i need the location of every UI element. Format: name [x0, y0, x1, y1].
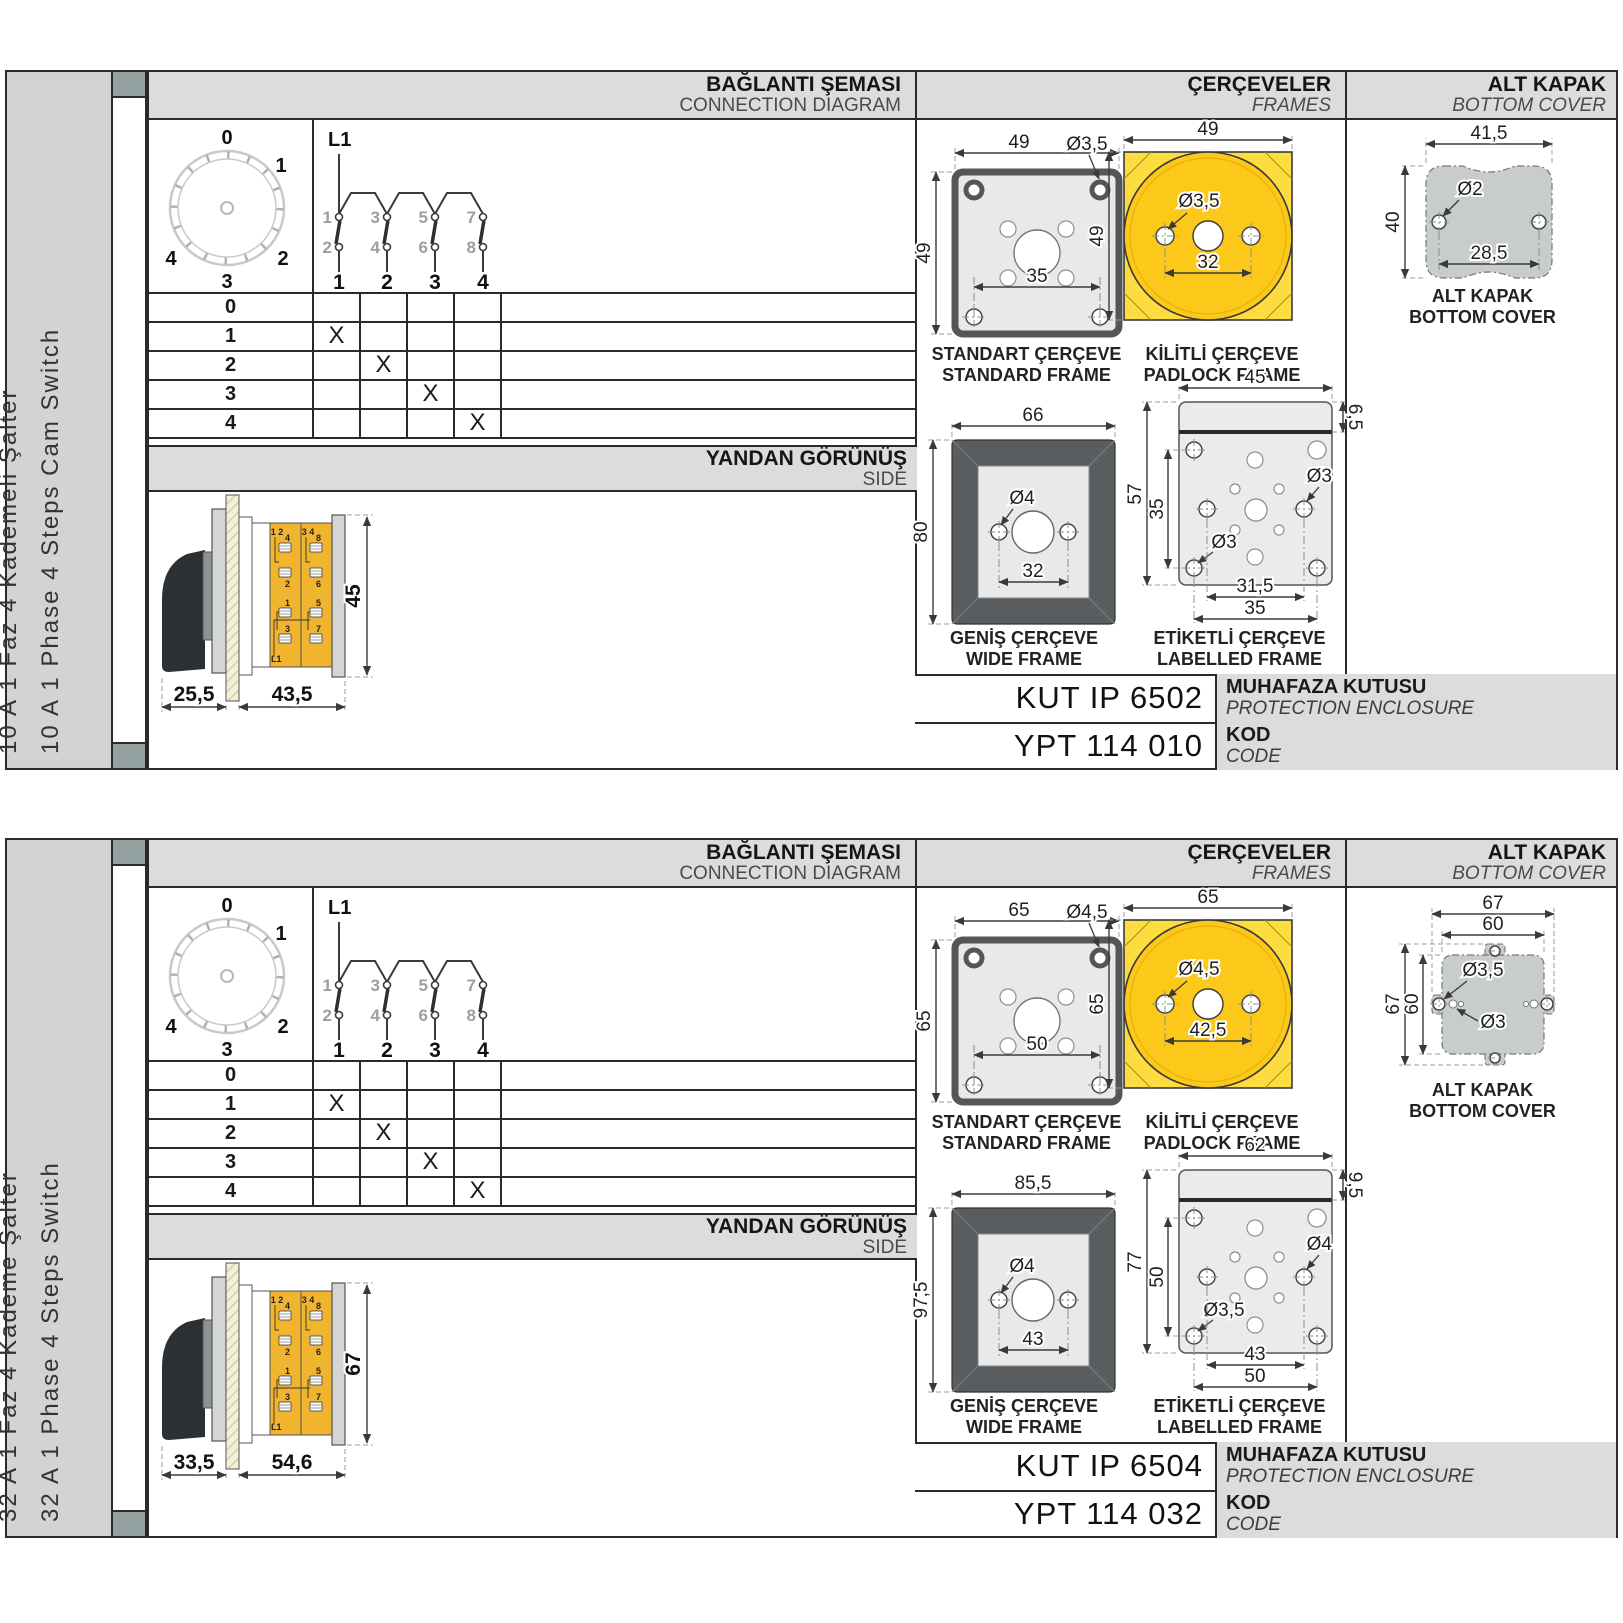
table-cell: [453, 352, 500, 379]
dim-hole: Ø3: [1307, 466, 1332, 487]
terminal-label: 3: [285, 1392, 290, 1402]
terminal-label: 1 2: [271, 527, 284, 537]
section-divider: [1345, 72, 1347, 674]
product-code-value: YPT 114 010: [917, 722, 1215, 770]
header-title: BAĞLANTI ŞEMASI: [706, 842, 901, 864]
table-row: 0: [149, 1062, 917, 1091]
terminal-label: 7: [316, 624, 321, 634]
label-english: CODE: [1226, 746, 1616, 767]
dim-hole-spacing: 32: [1022, 561, 1043, 582]
header-title: BAĞLANTI ŞEMASI: [706, 74, 901, 96]
table-cell: [359, 323, 406, 350]
table-filler: [500, 1120, 917, 1147]
table-cell: [312, 1062, 359, 1089]
caption-turkish: GENİŞ ÇERÇEVE: [919, 1396, 1129, 1417]
dial-position: 1: [275, 923, 286, 945]
padlock-frame-drawing: Ø3,5 49 49 32: [1099, 127, 1345, 342]
switching-table: 0 1X 2X 3X 4X: [149, 292, 917, 439]
row-label: 3: [149, 1149, 312, 1176]
dial-position: 4: [165, 1016, 177, 1038]
dim-hole: Ø3,5: [1462, 960, 1503, 981]
switching-table: 0 1X 2X 3X 4X: [149, 1060, 917, 1207]
label-english: CODE: [1226, 1514, 1616, 1535]
header-subtitle: FRAMES: [1252, 96, 1331, 116]
table-cell: [406, 410, 453, 437]
side-view-drawing: 1 2 3 4 4 2 1 3 8 6 5 7 L1 67 33,5 54,6: [149, 1260, 915, 1536]
dim-width: 66: [1022, 405, 1043, 426]
header-title: ALT KAPAK: [1488, 74, 1606, 96]
dim-width: 49: [1197, 119, 1218, 140]
shaft-hole: [1245, 1267, 1267, 1289]
terminal-label: 2: [285, 579, 290, 589]
dim-hole-spacing: 50: [1244, 1366, 1265, 1387]
table-filler: [500, 323, 917, 350]
table-cell: [312, 1178, 359, 1205]
dim-height: 80: [911, 521, 932, 542]
caption-english: WIDE FRAME: [919, 1417, 1129, 1438]
table-cell: [406, 1120, 453, 1147]
side-view-drawing: 1 2 3 4 4 2 1 3 8 6 5 7 L1 45 25,5 43,5: [149, 492, 915, 768]
product-title-turkish: 10 A 1 Faz 4 Kademeli Şalter: [0, 388, 23, 754]
terminal-number: 1: [323, 976, 332, 995]
terminal-number: 4: [371, 1006, 381, 1025]
dial-position: 2: [277, 1016, 288, 1038]
dim-height: 40: [1383, 211, 1404, 232]
product-panel-10a: 10 A 1 Faz 4 Kademeli Şalter 10 A 1 Phas…: [5, 70, 1618, 770]
header-connection-diagram: BAĞLANTI ŞEMASI CONNECTION DIAGRAM: [149, 72, 911, 118]
dim-height-outer: 67: [1383, 993, 1404, 1014]
product-panel-32a: 32 A 1 Faz 4 Kademe Şalter 32 A 1 Phase …: [5, 838, 1618, 1538]
table-cell: [406, 1091, 453, 1118]
dim-hole-spacing: 43: [1244, 1344, 1265, 1365]
header-subtitle: BOTTOM COVER: [1452, 864, 1606, 884]
pole-number: 2: [381, 271, 393, 294]
shaft-hole: [1245, 499, 1267, 521]
table-cell: [359, 410, 406, 437]
dim-width-inner: 60: [1482, 914, 1503, 935]
contact-schematic: L1 1 3 5 7 2 4 6 8 1 2: [314, 888, 915, 1060]
dial-position: 3: [221, 1039, 232, 1061]
caption-turkish: ETİKETLİ ÇERÇEVE: [1134, 1396, 1345, 1417]
dim-height: 45: [342, 584, 365, 608]
dim-hole: Ø4: [1307, 1234, 1333, 1255]
table-cell: [312, 294, 359, 321]
table-cell: [312, 1149, 359, 1176]
terminal-number: 4: [371, 238, 381, 257]
header-frames: ÇERÇEVELER FRAMES: [917, 72, 1341, 118]
terminal-label: 4: [285, 533, 290, 543]
cover-caption: ALT KAPAK BOTTOM COVER: [1349, 1080, 1616, 1122]
shaft-hole: [1012, 511, 1054, 553]
cover-caption: ALT KAPAK BOTTOM COVER: [1349, 286, 1616, 328]
table-cell: [453, 1062, 500, 1089]
dial-position: 2: [277, 248, 288, 270]
row-label: 2: [149, 352, 312, 379]
rotary-dial-diagram: 0 1 2 3 4: [149, 888, 312, 1060]
table-row: 3X: [149, 1149, 917, 1178]
dim-body-depth: 54,6: [272, 1451, 313, 1474]
dim-height-outer: 77: [1125, 1251, 1146, 1272]
table-filler: [500, 1062, 917, 1089]
label-english: PROTECTION ENCLOSURE: [1226, 1466, 1616, 1487]
frame-caption: ETİKETLİ ÇERÇEVE LABELLED FRAME: [1134, 628, 1345, 670]
header-title: ALT KAPAK: [1488, 842, 1606, 864]
terminal-label: 1 2: [271, 1295, 284, 1305]
header-subtitle: CONNECTION DIAGRAM: [679, 96, 901, 116]
binder-strip: [113, 70, 147, 770]
dim-hole-spacing: 35: [1026, 266, 1047, 287]
dim-hole-spacing: 43: [1022, 1329, 1043, 1350]
dim-width: 85,5: [1015, 1173, 1052, 1194]
dim-height-inner: 60: [1402, 993, 1423, 1014]
dim-strip-height: 9,5: [1344, 1172, 1365, 1198]
table-cell: [453, 1091, 500, 1118]
dim-width: 62: [1244, 1135, 1265, 1156]
row-label: 1: [149, 1091, 312, 1118]
label-turkish: MUHAFAZA KUTUSU: [1226, 1445, 1616, 1466]
contact-poles: [336, 982, 487, 1041]
dim-hole: Ø3,5: [1178, 191, 1219, 212]
table-cell: [406, 1062, 453, 1089]
terminal-number: 2: [323, 238, 332, 257]
dim-width-outer: 67: [1482, 893, 1503, 914]
table-cell: [453, 294, 500, 321]
terminal-label: 6: [316, 1347, 321, 1357]
rotary-dial-diagram: 0 1 2 3 4: [149, 120, 312, 292]
table-filler: [500, 381, 917, 408]
dim-hole: Ø3: [1480, 1012, 1505, 1033]
dim-height: 65: [1087, 993, 1108, 1014]
dim-width: 41,5: [1471, 123, 1508, 144]
mounting-panel: [226, 495, 239, 701]
caption-english: LABELLED FRAME: [1134, 1417, 1345, 1438]
table-cell: X: [406, 381, 453, 408]
table-cell: X: [312, 323, 359, 350]
caption-turkish: ALT KAPAK: [1349, 1080, 1616, 1101]
shaft-hole: [1193, 221, 1223, 251]
table-cell: [359, 1062, 406, 1089]
dim-height-inner: 35: [1147, 498, 1168, 519]
terminal-number: 3: [371, 976, 380, 995]
product-title-turkish: 32 A 1 Faz 4 Kademe Şalter: [0, 1171, 23, 1522]
front-plate: [212, 1277, 226, 1441]
caption-turkish: KİLİTLİ ÇERÇEVE: [1099, 344, 1345, 365]
caption-turkish: ETİKETLİ ÇERÇEVE: [1134, 628, 1345, 649]
frame-caption: GENİŞ ÇERÇEVE WIDE FRAME: [919, 1396, 1129, 1438]
shaft-hole: [1193, 989, 1223, 1019]
row-label: 4: [149, 1178, 312, 1205]
table-cell: [359, 1178, 406, 1205]
terminal-number: 3: [371, 208, 380, 227]
terminal-label: 6: [316, 579, 321, 589]
dim-strip-height: 6,5: [1344, 404, 1365, 430]
table-cell: [359, 381, 406, 408]
band-subtitle: SIDE: [863, 1238, 907, 1258]
enclosure-code-value: KUT IP 6504: [917, 1442, 1215, 1490]
table-filler: [500, 1091, 917, 1118]
caption-turkish: ALT KAPAK: [1349, 286, 1616, 307]
header-connection-diagram: BAĞLANTI ŞEMASI CONNECTION DIAGRAM: [149, 840, 911, 886]
dim-hole-spacing: 50: [1026, 1034, 1047, 1055]
binder-strip: [113, 838, 147, 1538]
table-filler: [500, 410, 917, 437]
feed-label: L1: [328, 129, 351, 151]
table-cell: X: [312, 1091, 359, 1118]
terminal-number: 5: [419, 976, 428, 995]
contact-poles: [336, 214, 487, 273]
caption-turkish: KİLİTLİ ÇERÇEVE: [1099, 1112, 1345, 1133]
dim-height: 97,5: [911, 1282, 932, 1319]
panel-main-area: BAĞLANTI ŞEMASI CONNECTION DIAGRAM ÇERÇE…: [147, 70, 1618, 770]
terminal-number: 1: [323, 208, 332, 227]
caption-turkish: GENİŞ ÇERÇEVE: [919, 628, 1129, 649]
table-cell: [312, 1120, 359, 1147]
table-row: 2X: [149, 1120, 917, 1149]
table-filler: [500, 294, 917, 321]
pole-number: 1: [333, 271, 345, 294]
side-view-band: YANDAN GÖRÜNÜŞ SIDE: [149, 1213, 917, 1260]
dim-hole: Ø4: [1009, 1256, 1035, 1277]
dim-hole-spacing: 35: [1244, 598, 1265, 619]
dial-position: 3: [221, 271, 232, 293]
binder-mark-top: [113, 72, 145, 98]
dim-height-outer: 57: [1125, 483, 1146, 504]
table-cell: X: [406, 1149, 453, 1176]
row-label: 4: [149, 410, 312, 437]
table-cell: X: [359, 1120, 406, 1147]
dim-height: 49: [914, 242, 935, 263]
dim-hole: Ø3: [1211, 532, 1236, 553]
terminal-label: 3 4: [302, 1295, 315, 1305]
product-title-english: 10 A 1 Phase 4 Steps Cam Switch: [37, 328, 65, 754]
terminal-label: 3: [285, 624, 290, 634]
labelled-frame-drawing: Ø4 Ø3,5 62 9,5 77 50 43 50: [1134, 1138, 1345, 1394]
terminal-label: 1: [285, 598, 290, 608]
binder-mark-bottom: [113, 1510, 145, 1536]
product-code-label: KOD CODE: [1217, 1490, 1616, 1538]
frame-caption: ETİKETLİ ÇERÇEVE LABELLED FRAME: [1134, 1396, 1345, 1438]
panel-main-area: BAĞLANTI ŞEMASI CONNECTION DIAGRAM ÇERÇE…: [147, 838, 1618, 1538]
terminal-number: 8: [467, 238, 476, 257]
wide-frame-drawing: Ø4 66 80 32: [919, 412, 1129, 626]
caption-english: BOTTOM COVER: [1349, 307, 1616, 328]
front-plate: [212, 509, 226, 673]
product-title-strip: 10 A 1 Faz 4 Kademeli Şalter 10 A 1 Phas…: [5, 70, 113, 770]
shaft-hole: [1012, 1279, 1054, 1321]
pole-number: 3: [429, 1039, 441, 1062]
switch-handle: [162, 550, 205, 672]
terminal-number: 2: [323, 1006, 332, 1025]
table-cell: X: [359, 352, 406, 379]
row-label: 0: [149, 1062, 312, 1089]
enclosure-code-label: MUHAFAZA KUTUSU PROTECTION ENCLOSURE: [1217, 674, 1616, 722]
pole-number: 4: [477, 271, 489, 294]
header-title: ÇERÇEVELER: [1187, 842, 1331, 864]
section-divider: [1345, 840, 1347, 1442]
enclosure-code-value: KUT IP 6502: [917, 674, 1215, 722]
contact-schematic: L1 1 3 5 7 2 4 6 8 1 2: [314, 120, 915, 292]
terminal-label: 8: [316, 1301, 321, 1311]
pole-number: 3: [429, 271, 441, 294]
table-row: 1X: [149, 323, 917, 352]
dim-hole-spacing: 42,5: [1190, 1020, 1227, 1041]
terminal-number: 6: [419, 238, 428, 257]
table-row: 1X: [149, 1091, 917, 1120]
table-cell: [312, 410, 359, 437]
dial-position: 0: [221, 895, 232, 917]
header-subtitle: FRAMES: [1252, 864, 1331, 884]
header-bottom-cover: ALT KAPAK BOTTOM COVER: [1347, 72, 1616, 118]
product-title-strip: 32 A 1 Faz 4 Kademe Şalter 32 A 1 Phase …: [5, 838, 113, 1538]
table-cell: [453, 381, 500, 408]
dim-height: 67: [342, 1352, 365, 1375]
dim-hole: Ø2: [1457, 179, 1482, 200]
table-row: 4X: [149, 410, 917, 439]
table-cell: [359, 294, 406, 321]
band-subtitle: SIDE: [863, 470, 907, 490]
frame-caption: GENİŞ ÇERÇEVE WIDE FRAME: [919, 628, 1129, 670]
dim-front-depth: 25,5: [174, 683, 215, 706]
table-cell: X: [453, 1178, 500, 1205]
band-title: YANDAN GÖRÜNÜŞ: [706, 448, 907, 470]
row-label: 2: [149, 1120, 312, 1147]
table-cell: [312, 352, 359, 379]
terminal-label: 3 4: [302, 527, 315, 537]
terminal-number: 8: [467, 1006, 476, 1025]
table-row: 0: [149, 294, 917, 323]
product-code-value: YPT 114 032: [917, 1490, 1215, 1538]
dim-width: 65: [1008, 900, 1029, 921]
terminal-label: L1: [271, 1422, 282, 1432]
label-turkish: KOD: [1226, 1493, 1616, 1514]
dial-position: 0: [221, 127, 232, 149]
dial-center: [221, 970, 233, 982]
table-cell: [453, 323, 500, 350]
header-subtitle: CONNECTION DIAGRAM: [679, 864, 901, 884]
table-filler: [500, 1149, 917, 1176]
bottom-cover-drawing: Ø2 41,5 40 28,5: [1349, 120, 1616, 282]
terminal-label: 4: [285, 1301, 290, 1311]
enclosure-code-label: MUHAFAZA KUTUSU PROTECTION ENCLOSURE: [1217, 1442, 1616, 1490]
catalog-page: 10 A 1 Faz 4 Kademeli Şalter 10 A 1 Phas…: [0, 0, 1623, 1623]
terminal-label: 5: [316, 1366, 321, 1376]
caption-english: LABELLED FRAME: [1134, 649, 1345, 670]
terminal-number: 7: [467, 208, 476, 227]
dim-width: 65: [1197, 887, 1218, 908]
terminal-label: 2: [285, 1347, 290, 1357]
wide-frame-drawing: Ø4 85,5 97,5 43: [919, 1180, 1129, 1394]
table-cell: [406, 323, 453, 350]
table-cell: [406, 294, 453, 321]
dim-height-inner: 50: [1147, 1266, 1168, 1287]
dim-width: 45: [1244, 367, 1265, 388]
label-english: PROTECTION ENCLOSURE: [1226, 698, 1616, 719]
dim-height: 49: [1087, 225, 1108, 246]
table-row: 4X: [149, 1178, 917, 1207]
dim-hole-spacing: 31,5: [1237, 576, 1274, 597]
terminal-number: 7: [467, 976, 476, 995]
caption-english: BOTTOM COVER: [1349, 1101, 1616, 1122]
dim-hole: Ø4: [1009, 488, 1035, 509]
labelled-frame-drawing: Ø3 Ø3 45 6,5 57 35 31,5 35: [1134, 370, 1345, 626]
dim-hole-spacing: 32: [1197, 252, 1218, 273]
table-cell: [406, 1178, 453, 1205]
row-label: 1: [149, 323, 312, 350]
switch-handle: [162, 1318, 205, 1440]
binder-mark-bottom: [113, 742, 145, 768]
table-filler: [500, 1178, 917, 1205]
table-cell: [312, 381, 359, 408]
table-cell: [453, 1120, 500, 1147]
label-turkish: KOD: [1226, 725, 1616, 746]
dim-width: 49: [1008, 132, 1029, 153]
row-label: 0: [149, 294, 312, 321]
pole-number: 2: [381, 1039, 393, 1062]
terminal-label: 5: [316, 598, 321, 608]
product-code-label: KOD CODE: [1217, 722, 1616, 770]
dim-hole: Ø4,5: [1178, 959, 1219, 980]
caption-english: WIDE FRAME: [919, 649, 1129, 670]
dim-height: 65: [914, 1010, 935, 1031]
product-title-english: 32 A 1 Phase 4 Steps Switch: [37, 1161, 65, 1522]
table-cell: [453, 1149, 500, 1176]
label-turkish: MUHAFAZA KUTUSU: [1226, 677, 1616, 698]
dial-position: 1: [275, 155, 286, 177]
table-cell: X: [453, 410, 500, 437]
terminal-label: L1: [271, 654, 282, 664]
header-subtitle: BOTTOM COVER: [1452, 96, 1606, 116]
table-row: 2X: [149, 352, 917, 381]
dim-hole: Ø3,5: [1203, 1300, 1244, 1321]
terminal-label: 8: [316, 533, 321, 543]
header-bottom-cover: ALT KAPAK BOTTOM COVER: [1347, 840, 1616, 886]
bottom-cover-drawing: Ø3,5 Ø3 67 60 67 60: [1349, 888, 1616, 1076]
table-cell: [359, 1149, 406, 1176]
row-label: 3: [149, 381, 312, 408]
side-view-band: YANDAN GÖRÜNÜŞ SIDE: [149, 445, 917, 492]
dim-hole-spacing: 28,5: [1471, 243, 1508, 264]
dim-body-depth: 43,5: [272, 683, 313, 706]
pole-number: 1: [333, 1039, 345, 1062]
table-row: 3X: [149, 381, 917, 410]
feed-label: L1: [328, 897, 351, 919]
dial-center: [221, 202, 233, 214]
table-cell: [406, 352, 453, 379]
table-filler: [500, 352, 917, 379]
header-title: ÇERÇEVELER: [1187, 74, 1331, 96]
terminal-label: 1: [285, 1366, 290, 1376]
band-title: YANDAN GÖRÜNÜŞ: [706, 1216, 907, 1238]
mounting-panel: [226, 1263, 239, 1469]
padlock-frame-drawing: Ø4,5 65 65 42,5: [1099, 895, 1345, 1110]
pole-number: 4: [477, 1039, 489, 1062]
table-cell: [359, 1091, 406, 1118]
dim-front-depth: 33,5: [174, 1451, 215, 1474]
binder-mark-top: [113, 840, 145, 866]
dial-position: 4: [165, 248, 177, 270]
header-frames: ÇERÇEVELER FRAMES: [917, 840, 1341, 886]
terminal-label: 7: [316, 1392, 321, 1402]
terminal-number: 6: [419, 1006, 428, 1025]
terminal-number: 5: [419, 208, 428, 227]
